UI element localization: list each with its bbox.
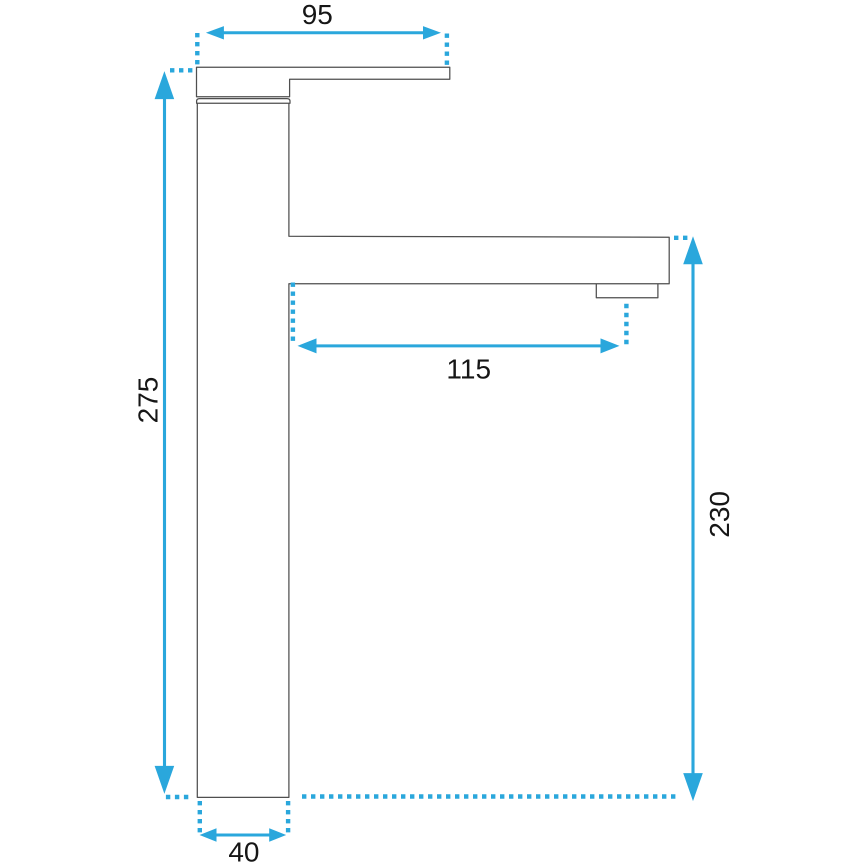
svg-text:40: 40: [228, 836, 259, 867]
svg-text:115: 115: [446, 354, 491, 385]
svg-text:275: 275: [132, 377, 163, 424]
svg-text:95: 95: [302, 0, 333, 30]
svg-text:230: 230: [704, 491, 735, 538]
